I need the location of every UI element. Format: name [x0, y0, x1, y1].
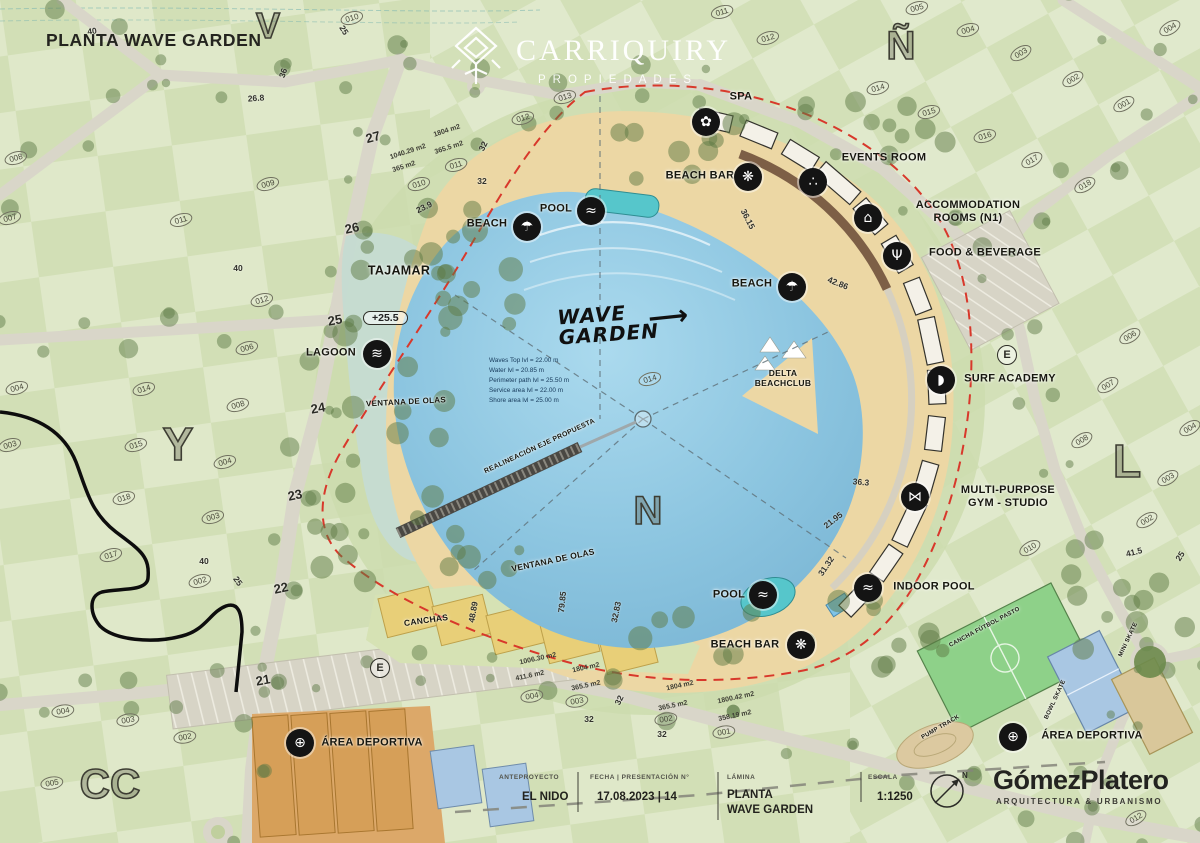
events-room-icon: ∴ [799, 168, 827, 196]
area-label: TAJAMAR [368, 264, 430, 279]
brand-logo: CARRIQUIRY PROPIEDADES [450, 26, 790, 95]
area-label: VENTANA DE OLAS [366, 395, 446, 409]
lot-area-label: 411.6 m2 [515, 670, 545, 683]
measurement-label: 25 [231, 574, 245, 587]
lot-marker: 011 [168, 211, 193, 230]
lot-marker: 002 [1060, 68, 1087, 91]
lot-marker: 002 [1134, 509, 1161, 532]
area-label: BOWL SKATE [1044, 679, 1068, 721]
surf-academy-icon: ◗ [927, 366, 955, 394]
street-number: 26 [343, 219, 360, 237]
block-letter: Y [163, 421, 194, 467]
lot-marker: 004 [1157, 17, 1184, 40]
measurement-label: 36.15 [739, 207, 758, 231]
measurement-label: 48.89 [466, 601, 480, 624]
lot-marker: 001 [711, 724, 736, 741]
lot-marker: 003 [1155, 467, 1182, 490]
lot-area-label: 1006.30 m2 [519, 652, 557, 667]
facility-label: FOOD & BEVERAGE [929, 247, 1041, 260]
lot-marker: 006 [1117, 325, 1144, 348]
street-number: 23 [286, 486, 303, 504]
brand-name: CARRIQUIRY [516, 34, 731, 68]
lot-marker: 007 [1095, 374, 1122, 397]
lot-marker: 009 [255, 175, 281, 194]
facility-label: BEACH [467, 218, 508, 231]
lot-area-label: 1800.42 m2 [717, 691, 755, 706]
measurement-label: 36 [277, 67, 289, 79]
tb-field-value: 1:1250 [877, 790, 913, 805]
measurement-label: 21.95 [822, 510, 845, 531]
facility-label: BEACH BAR [666, 170, 735, 183]
measurement-label: 32 [476, 140, 489, 153]
lot-marker: 011 [443, 156, 468, 175]
parking-e-marker: E [997, 345, 1017, 365]
facility-label: LAGOON [306, 347, 356, 360]
area-label: CANCHA FÚTBOL PASTO [948, 606, 1021, 649]
lot-marker: 003 [115, 712, 140, 729]
lot-marker: 015 [916, 103, 942, 122]
block-letter: N [634, 491, 663, 531]
lot-marker: 003 [564, 693, 589, 710]
carriquiry-crest-icon [450, 26, 502, 90]
lot-marker: 016 [972, 127, 998, 146]
lot-marker: 004 [212, 453, 238, 472]
lot-marker: 002 [187, 572, 213, 591]
measurement-label: 79.85 [556, 591, 568, 613]
measurement-label: 26.8 [247, 92, 264, 103]
lot-marker: 004 [50, 703, 75, 720]
street-number: 22 [272, 579, 289, 597]
measurement-label: 32 [584, 714, 593, 724]
site-plan: N PLANTA WAVE GARDEN CARRIQUIRY PROPIEDA… [0, 0, 1200, 843]
facility-label: POOL [713, 589, 745, 602]
lot-marker: 012 [1123, 807, 1150, 830]
lot-area-label: 1804 m2 [572, 662, 600, 675]
lot-marker: 008 [225, 396, 251, 415]
lot-marker: 004 [1177, 417, 1200, 440]
lot-marker: 006 [234, 339, 260, 358]
beach-bar-icon: ❋ [734, 163, 762, 191]
lot-marker: 004 [519, 688, 544, 705]
tb-field-label: ANTEPROYECTO [499, 774, 559, 781]
facility-label: EVENTS ROOM [842, 152, 927, 165]
beach-umbrella-icon: ☂ [513, 213, 541, 241]
tb-field-value: EL NIDO [522, 790, 568, 805]
measurement-label: 32 [477, 176, 486, 186]
firm-tagline: ARQUITECTURA & URBANISMO [996, 797, 1162, 806]
area-label: REALINEACIÓN EJE PROPUESTA [483, 418, 596, 477]
lot-marker: 014 [865, 79, 891, 98]
street-number: 25 [327, 311, 344, 328]
lot-area-label: 365.5 m2 [434, 140, 464, 156]
area-label: PUMP TRACK [921, 714, 962, 742]
measurement-label: 36.3 [852, 476, 869, 487]
measurement-label: 25 [1173, 549, 1186, 562]
area-label: VENTANA DE OLAS [510, 546, 595, 573]
lot-marker: 015 [123, 436, 149, 455]
block-letter: Ñ [887, 26, 916, 66]
area-label: CANCHAS [403, 612, 449, 628]
wave-garden-arrow: ⟶ [646, 298, 689, 335]
street-number: 24 [310, 399, 327, 416]
measurement-label: 25 [337, 23, 350, 36]
lot-marker: 008 [3, 149, 29, 168]
lot-area-label: 365.5 m2 [658, 700, 688, 713]
lot-marker: 007 [0, 209, 23, 228]
lot-marker: 012 [249, 291, 275, 310]
lot-area-label: 1804 m2 [666, 680, 694, 693]
facility-label: SPA [730, 91, 753, 104]
facility-label: ACCOMMODATION ROOMS (N1) [916, 199, 1021, 225]
tb-field-value: PLANTA WAVE GARDEN [727, 788, 813, 818]
measurement-label: 40 [233, 263, 242, 273]
lot-marker: 012 [510, 109, 536, 128]
lot-marker: 011 [709, 3, 734, 22]
lot-marker: 014 [637, 370, 663, 389]
pool-ladder-icon: ≈ [577, 197, 605, 225]
street-number: 21 [255, 671, 272, 688]
gym-icon: ⋈ [901, 483, 929, 511]
measurement-label: 31.32 [816, 554, 836, 577]
lagoon-icon: ≋ [363, 340, 391, 368]
lot-area-label: 358.19 m2 [718, 709, 752, 723]
lagoon-stats: Waves Top lvl = 22.00 m Water lvl = 20.8… [489, 356, 569, 406]
accommodation-icon: ⌂ [854, 204, 882, 232]
measurement-label: 32 [612, 694, 625, 707]
parking-e-marker: E [370, 658, 390, 678]
facility-label: SURF ACADEMY [964, 373, 1056, 386]
page-title: PLANTA WAVE GARDEN [46, 30, 262, 51]
lot-marker: 004 [955, 21, 981, 40]
food-beverage-icon: Ψ [883, 242, 911, 270]
indoor-pool-icon: ≈ [854, 574, 882, 602]
lot-marker: 017 [98, 546, 124, 565]
facility-label: ÁREA DEPORTIVA [321, 737, 422, 750]
lot-marker: 005 [39, 775, 64, 792]
lot-area-label: 1040.29 m2 [389, 143, 427, 161]
elevation-marker: +25.5 [363, 311, 408, 325]
wave-garden-note: WAVE GARDEN [557, 301, 660, 348]
pool-ladder-icon: ≈ [749, 581, 777, 609]
lot-marker: 003 [200, 508, 226, 527]
facility-label: INDOOR POOL [893, 581, 975, 594]
measurement-label: 40 [199, 556, 208, 566]
measurement-label: 23.9 [414, 199, 433, 215]
area-label: DELTA BEACHCLUB [755, 368, 812, 388]
lot-marker: 002 [653, 711, 678, 728]
beach-umbrella-icon: ☂ [778, 273, 806, 301]
block-letter: V [256, 8, 280, 44]
tb-field-label: FECHA | PRESENTACIÓN N° [590, 774, 689, 781]
tb-field-value: 17.08.2023 | 14 [597, 790, 677, 805]
sports-ball-icon: ⊕ [286, 729, 314, 757]
sports-ball-icon: ⊕ [999, 723, 1027, 751]
facility-label: MULTI-PURPOSE GYM - STUDIO [961, 484, 1055, 510]
measurement-label: 42.86 [826, 274, 849, 291]
lot-marker: 010 [1017, 537, 1044, 560]
measurement-label: 40 [87, 25, 98, 36]
facility-label: BEACH [732, 278, 773, 291]
lot-marker: 001 [1111, 93, 1138, 116]
spa-icon: ✿ [692, 108, 720, 136]
facility-label: ÁREA DEPORTIVA [1041, 730, 1142, 743]
lot-marker: 018 [111, 489, 137, 508]
lot-marker: 014 [131, 380, 157, 399]
lot-marker: 018 [1072, 174, 1099, 197]
facility-label: BEACH BAR [711, 639, 780, 652]
lot-area-label: 365.5 m2 [571, 680, 601, 693]
lot-area-label: 1804 m2 [433, 123, 461, 138]
annotation-layer: PLANTA WAVE GARDEN CARRIQUIRY PROPIEDADE… [0, 0, 1200, 843]
block-letter: CC [80, 763, 141, 805]
measurement-label: 32 [657, 729, 666, 739]
brand-subtitle: PROPIEDADES [538, 74, 698, 86]
lot-marker: 003 [0, 436, 23, 455]
lot-marker: 008 [1069, 429, 1096, 452]
tb-field-label: ESCALA [868, 774, 898, 781]
tb-field-label: LÁMINA [727, 774, 755, 781]
lot-marker: 002 [172, 729, 197, 746]
lot-area-label: 365 m2 [392, 160, 417, 174]
street-number: 27 [364, 128, 382, 146]
measurement-label: 32.83 [609, 601, 623, 624]
lot-marker: 010 [406, 175, 432, 194]
measurement-label: 41.5 [1125, 545, 1143, 559]
lot-marker: 005 [904, 0, 930, 17]
area-label: MINI SKATE [1118, 622, 1140, 659]
block-letter: L [1113, 438, 1141, 484]
lot-marker: 004 [4, 379, 30, 398]
beach-bar-icon: ❋ [787, 631, 815, 659]
firm-name: GómezPlatero [993, 765, 1169, 796]
lot-marker: 017 [1019, 149, 1046, 172]
facility-label: POOL [540, 203, 572, 216]
lot-marker: 003 [1008, 42, 1035, 65]
